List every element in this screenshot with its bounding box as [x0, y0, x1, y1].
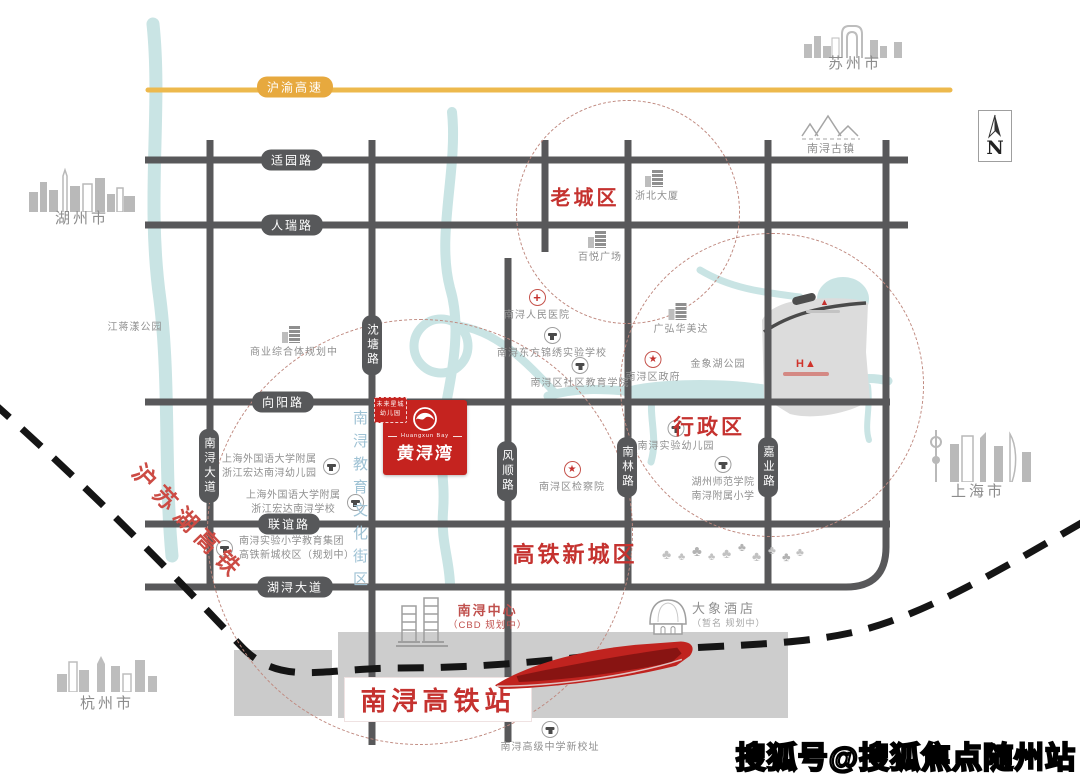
tree-icon: ♣	[692, 543, 702, 560]
road-label-shentang: 沈塘路	[362, 315, 382, 375]
road-label-fengshun: 风顺路	[497, 441, 517, 501]
compass-n-label: N	[986, 139, 1003, 158]
road-label-huxun-avenue: 湖浔大道	[257, 577, 333, 598]
star-icon: ★	[645, 351, 662, 368]
highway-label: 沪渝高速	[257, 77, 333, 98]
landmark-senior-high-new-campus: 南浔高级中学新校址	[501, 721, 600, 754]
school-icon	[715, 456, 732, 473]
landmark-commercial-complex: 商业综合体规划中	[250, 326, 338, 359]
estate-brand-logo: H▲	[796, 358, 817, 370]
estate-triangle-marker-icon	[820, 297, 829, 307]
landmark-baiyue-plaza: 百悦广场	[578, 231, 622, 264]
tree-icon: ♣	[796, 545, 804, 559]
building-icon	[595, 231, 606, 248]
road-label-jiaye: 嘉业路	[758, 437, 778, 497]
tree-icon: ♣	[752, 548, 761, 564]
landmark-district-government: ★ 南浔区政府	[626, 351, 681, 384]
landmark-community-college: 南浔区社区教育学院	[531, 357, 630, 390]
nanxun-location-map: 湖州市 苏州市 上海市 杭州市 南浔古镇 N 沪渝高	[0, 0, 1080, 779]
ancient-town-icon	[800, 106, 864, 142]
station-block-west	[234, 650, 332, 716]
district-hsr-new-town: 高铁新城区	[512, 537, 637, 569]
tree-icon: ♣	[738, 540, 746, 554]
star-icon: ★	[564, 461, 581, 478]
tree-icon: ♣	[722, 545, 731, 561]
tree-icon: ♣	[768, 543, 776, 557]
road-label-nanxun-avenue: 南浔大道	[199, 429, 219, 503]
road-label-renrui: 人瑞路	[261, 215, 323, 236]
landmark-sisu-kindergarten: 上海外国语大学附属 浙江宏达南浔幼儿园	[222, 453, 340, 480]
landmark-zhebei-tower: 浙北大厦	[635, 170, 679, 203]
landmark-jinxiu-school: 南浔东方锦绣实验学校	[497, 327, 607, 360]
huzhou-skyline-icon	[27, 166, 137, 212]
landmark-elephant-hotel: 大象酒店 （暂名 规划中）	[692, 601, 766, 630]
landmark-peoples-hospital: + 南浔人民医院	[504, 289, 570, 322]
school-icon	[544, 327, 561, 344]
school-icon	[572, 357, 589, 374]
hangzhou-label: 杭州市	[80, 692, 134, 713]
project-kindergarten-note: 未来星城 幼儿园	[374, 397, 407, 423]
hospital-icon: +	[529, 289, 546, 306]
ancient-town-label: 南浔古镇	[807, 142, 855, 156]
landmark-jiangjiangyang-park: 江蒋漾公园	[108, 321, 163, 334]
estate-caption-illegible	[806, 310, 840, 313]
elephant-hotel-icon	[646, 594, 690, 636]
landmark-normal-college-primary: 湖州师范学院 南浔附属小学	[692, 456, 755, 503]
watermark: 搜狐号@搜狐焦点随州站	[736, 733, 1076, 777]
project-marker: 未来星城 幼儿园 Huangxun Bay 黄浔湾	[383, 400, 467, 475]
estate-brand-caption-illegible	[783, 372, 829, 376]
hangzhou-skyline-icon	[55, 648, 160, 692]
project-name-cn: 黄浔湾	[396, 439, 455, 464]
school-icon	[323, 458, 340, 475]
district-admin: 行政区	[673, 411, 745, 441]
education-culture-strip-label: 南浔教育文化街区	[349, 410, 370, 594]
landmark-ramada-hotel: 广弘华美达	[654, 303, 709, 336]
shanghai-label: 上海市	[951, 480, 1005, 501]
tree-icon: ♣	[678, 551, 685, 563]
building-icon	[289, 326, 300, 343]
road-label-lianyi: 联谊路	[258, 514, 320, 535]
road-label-xiangyang: 向阳路	[252, 392, 314, 413]
landmark-nanxun-center: 南浔中心 （CBD 规划中）	[448, 603, 527, 632]
landmark-procuratorate: ★ 南浔区检察院	[539, 461, 605, 494]
tree-icon: ♣	[782, 549, 791, 564]
huzhou-label: 湖州市	[55, 207, 109, 228]
landmark-jinxiang-lake-park: 金象湖公园	[691, 358, 746, 371]
road-label-shiyuan: 适园路	[261, 150, 323, 171]
tree-icon: ♣	[708, 551, 715, 563]
suzhou-label: 苏州市	[828, 52, 882, 73]
bullet-train-icon	[486, 634, 704, 694]
building-icon	[652, 170, 663, 187]
compass-arrow-icon	[978, 111, 1012, 139]
school-icon	[542, 721, 559, 738]
cbd-towers-icon	[396, 596, 448, 648]
compass: N	[978, 110, 1012, 162]
landmark-sisu-school: 上海外国语大学附属 浙江宏达南浔学校	[246, 489, 364, 516]
road-label-nanlin: 南林路	[617, 437, 637, 497]
district-old-town: 老城区	[551, 182, 620, 211]
project-logo-icon	[412, 406, 438, 432]
tree-icon: ♣	[662, 546, 671, 562]
building-icon	[676, 303, 687, 320]
shanghai-skyline-icon	[922, 424, 1034, 482]
